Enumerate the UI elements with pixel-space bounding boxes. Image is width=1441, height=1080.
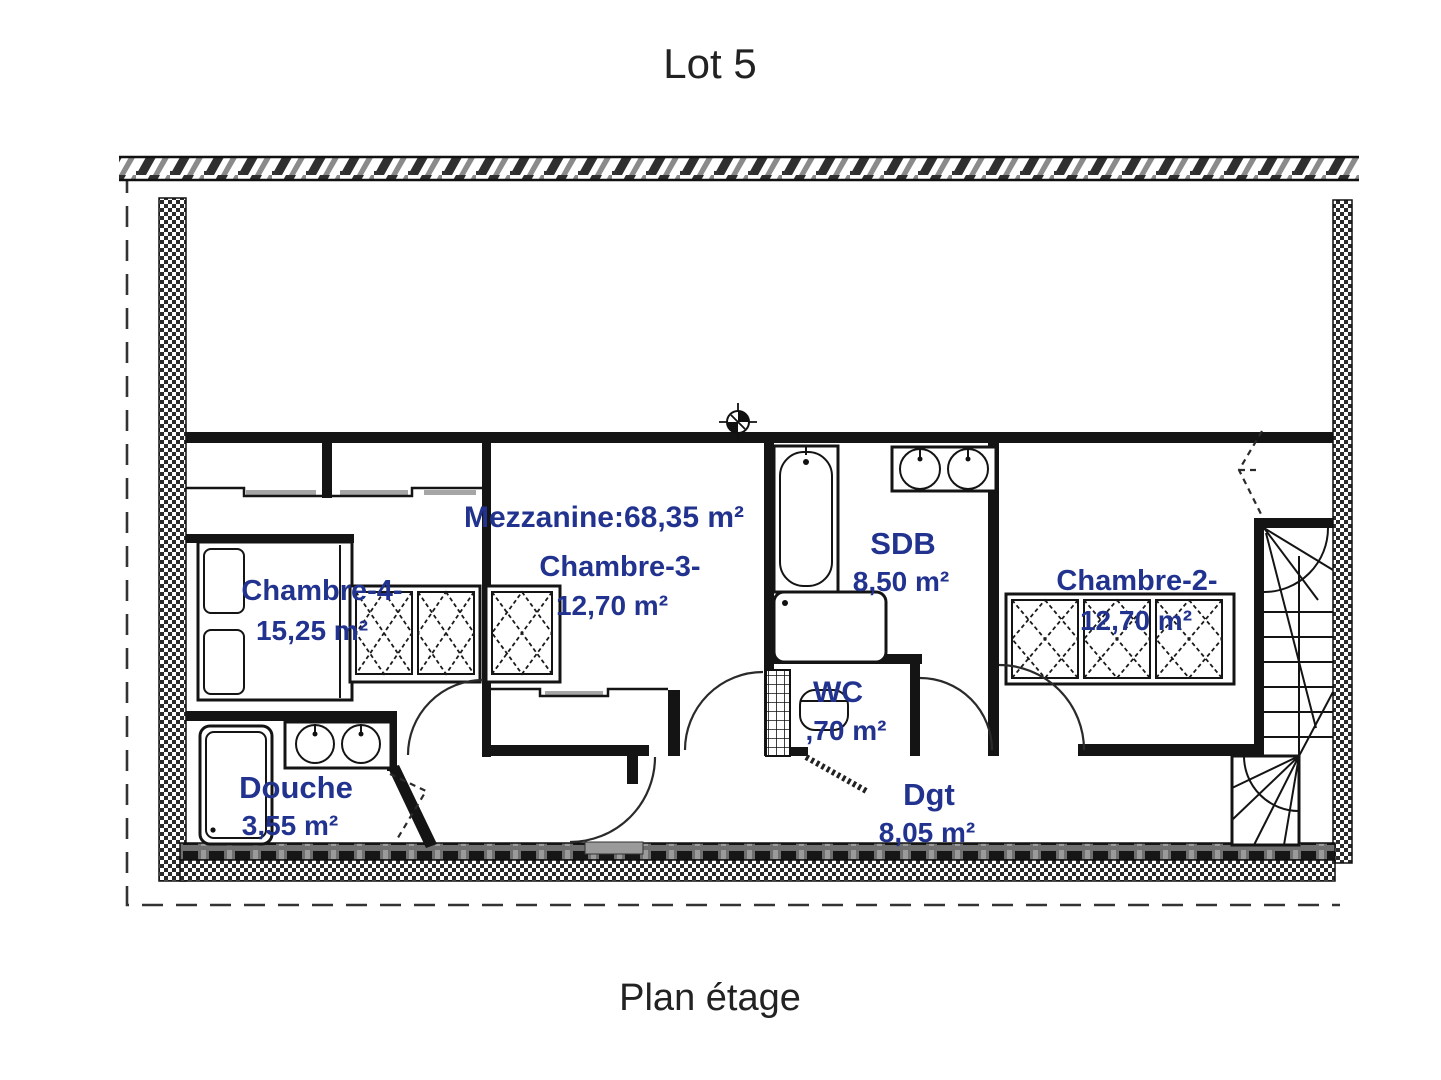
exterior-wall-top <box>119 156 1359 181</box>
room-area-chambre3: 12,70 m² <box>556 590 668 621</box>
room-label-wc: WC <box>813 676 863 709</box>
room-area-chambre2: 12,70 m² <box>1080 605 1192 636</box>
room-label-chambre4: Chambre-4- <box>241 575 402 607</box>
room-area-wc: ,70 m² <box>806 715 887 746</box>
room-area-dgt: 8,05 m² <box>879 817 976 848</box>
room-label-chambre2: Chambre-2- <box>1056 565 1217 597</box>
room-area-sdb: 8,50 m² <box>853 566 950 597</box>
room-label-sdb: SDB <box>870 526 935 561</box>
staircase <box>1232 528 1333 845</box>
mezzanine-label: Mezzanine:68,35 m² <box>464 501 744 534</box>
exterior-wall-left <box>159 198 186 881</box>
room-area-douche: 3,55 m² <box>242 810 339 841</box>
floorplan-drawing: Lot 5 Plan étage Mezzanine:68,35 m² Cham… <box>0 0 1441 1080</box>
exterior-wall-bottom <box>180 843 1335 881</box>
double-sink-sdb <box>892 447 996 491</box>
room-label-chambre3: Chambre-3- <box>539 551 700 583</box>
double-sink-douche <box>285 722 391 768</box>
room-label-dgt: Dgt <box>903 777 955 812</box>
floorplan-page: Lot 5 Plan étage Mezzanine:68,35 m² Cham… <box>0 0 1441 1080</box>
exterior-wall-right <box>1333 200 1352 863</box>
duct-shaft <box>766 670 790 756</box>
shower-unit-sdb <box>774 592 886 662</box>
room-area-chambre4: 15,25 m² <box>256 615 368 646</box>
page-title: Lot 5 <box>663 40 756 87</box>
plan-caption: Plan étage <box>619 977 801 1019</box>
room-label-douche: Douche <box>239 770 353 805</box>
bathtub <box>774 446 838 592</box>
wardrobe-chambre3 <box>486 586 560 682</box>
